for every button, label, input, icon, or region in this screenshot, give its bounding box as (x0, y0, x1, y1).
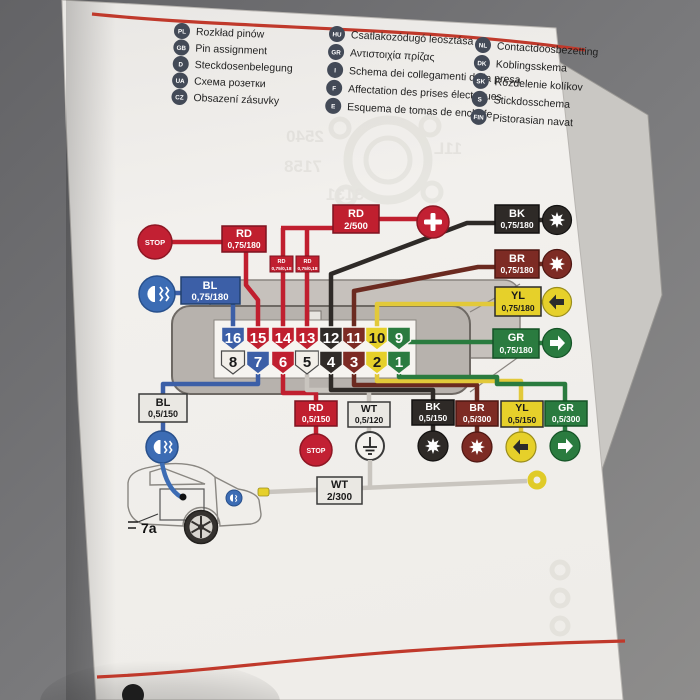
svg-text:WT: WT (331, 479, 348, 491)
svg-text:15: 15 (250, 330, 267, 347)
pin-14: 14 (272, 327, 295, 350)
language-code: HU (332, 31, 342, 38)
svg-text:13: 13 (299, 330, 316, 347)
svg-text:0,75/180: 0,75/180 (227, 240, 260, 250)
ghost-number: 11L (434, 139, 462, 158)
fog-lamp-symbol-top (139, 276, 175, 312)
svg-text:5: 5 (303, 354, 311, 371)
turn-signal-right-symbol-top (543, 329, 572, 358)
svg-text:0,75/0,18: 0,75/0,18 (297, 266, 317, 272)
tail-lamp-symbol-black-top (543, 206, 572, 235)
label-rd-stop: RD 0,75/180 (222, 226, 266, 252)
housing-latch (309, 311, 321, 320)
svg-text:GR: GR (558, 402, 574, 414)
ghost-number: 2540 (286, 127, 324, 146)
svg-text:0,75/0,18: 0,75/0,18 (271, 266, 291, 272)
stop-symbol-top: STOP (138, 225, 172, 259)
wire-ferrule (258, 488, 269, 496)
svg-text:YL: YL (511, 290, 525, 302)
svg-text:10: 10 (369, 330, 386, 347)
svg-text:BL: BL (156, 397, 171, 409)
svg-text:RD: RD (348, 208, 364, 220)
svg-text:0,5/150: 0,5/150 (508, 415, 537, 425)
svg-text:6: 6 (279, 354, 287, 371)
svg-text:0,75/180: 0,75/180 (192, 292, 229, 303)
language-code: F (332, 85, 336, 92)
label-rd-plus: RD 2/500 (333, 205, 379, 233)
svg-text:0,75/180: 0,75/180 (501, 303, 534, 313)
pin-12: 12 (320, 327, 343, 350)
svg-text:BL: BL (203, 280, 218, 292)
svg-text:1: 1 (395, 354, 403, 371)
car-callout-label: 7a (141, 520, 157, 536)
svg-text:8: 8 (229, 354, 237, 371)
svg-text:GR: GR (508, 332, 525, 344)
ghost-number: 3131 (326, 185, 364, 204)
language-code: S (477, 96, 482, 103)
pin-10: 10 (366, 327, 389, 350)
svg-text:0,5/120: 0,5/120 (355, 415, 384, 425)
svg-text:RD: RD (278, 259, 286, 265)
language-code: PL (178, 28, 186, 35)
language-code: GR (331, 49, 341, 57)
label-yl-bottom: YL 0,5/150 (501, 401, 543, 427)
label-rd-small-2: RD 0,75/0,18 (296, 256, 319, 272)
svg-text:2/500: 2/500 (344, 221, 368, 232)
svg-text:STOP: STOP (307, 448, 326, 455)
label-rd-bottom: RD 0,5/150 (295, 401, 337, 426)
tail-lamp-symbol-brown-top (543, 250, 572, 279)
car-connection-dot (180, 494, 187, 501)
photo-of-instruction-sheet: 2540 7158 3131 11L PL Rozkład pinów GB P… (0, 0, 700, 700)
car-fog-lamp-marker (226, 490, 242, 506)
label-gr-top: GR 0,75/180 (493, 329, 539, 358)
svg-text:RD: RD (304, 259, 312, 265)
svg-text:RD: RD (236, 228, 252, 240)
fog-lamp-symbol-bottom (146, 431, 178, 463)
label-bk-bottom: BK 0,5/150 (412, 400, 454, 425)
tail-lamp-symbol-brown-bottom (462, 432, 492, 462)
svg-text:0,5/300: 0,5/300 (552, 414, 581, 424)
svg-text:4: 4 (327, 354, 336, 371)
label-rd-small-1: RD 0,75/0,18 (270, 256, 293, 272)
language-code: UA (175, 78, 185, 85)
svg-text:2/300: 2/300 (327, 492, 352, 503)
label-yl-top: YL 0,75/180 (495, 287, 541, 316)
label-wt-bottom: WT 0,5/120 (348, 402, 390, 427)
svg-text:0,75/180: 0,75/180 (499, 345, 532, 355)
svg-text:14: 14 (275, 330, 292, 347)
battery-plus-symbol (417, 206, 449, 238)
language-code: FIN (473, 114, 484, 122)
stop-symbol-bottom: STOP (300, 434, 332, 466)
lamp-star-icon (549, 212, 565, 228)
turn-signal-right-symbol-bottom (550, 431, 580, 461)
svg-text:BK: BK (509, 208, 525, 220)
lamp-star-icon (425, 438, 441, 454)
svg-text:0,5/300: 0,5/300 (463, 414, 492, 424)
language-code: GB (176, 45, 186, 52)
svg-text:YL: YL (515, 402, 529, 414)
svg-text:WT: WT (361, 403, 378, 415)
car-wheel-hub (198, 524, 204, 530)
svg-text:0,5/150: 0,5/150 (419, 413, 448, 423)
svg-text:9: 9 (395, 330, 403, 347)
label-br-bottom: BR 0,5/300 (456, 401, 498, 426)
svg-text:7: 7 (254, 354, 262, 371)
ghost-number: 7158 (284, 157, 322, 176)
svg-text:16: 16 (225, 330, 242, 347)
paper-left-shadow (66, 0, 116, 700)
language-code: CZ (175, 94, 184, 101)
pin-15: 15 (247, 327, 270, 350)
turn-signal-left-symbol-bottom (506, 432, 536, 462)
language-code: DK (477, 60, 487, 68)
lamp-star-icon (549, 256, 565, 272)
label-bl-top: BL 0,75/180 (181, 277, 240, 304)
label-wt-ground: WT 2/300 (317, 477, 362, 504)
svg-text:2: 2 (373, 354, 381, 371)
label-bk-top: BK 0,75/180 (495, 205, 539, 233)
svg-text:BR: BR (509, 253, 525, 265)
connector-pins: 16 15 14 13 12 11 10 9 8 7 6 5 4 3 2 1 (222, 327, 411, 374)
svg-text:11: 11 (346, 330, 362, 347)
svg-text:3: 3 (350, 354, 358, 371)
svg-text:RD: RD (308, 402, 324, 414)
label-br-top: BR 0,75/180 (495, 250, 539, 278)
language-code: SK (476, 78, 486, 86)
svg-text:STOP: STOP (145, 238, 165, 247)
svg-text:BR: BR (469, 402, 485, 414)
turn-signal-left-symbol-top (543, 288, 572, 317)
svg-text:0,5/150: 0,5/150 (148, 409, 178, 419)
tail-lamp-symbol-black-bottom (418, 431, 448, 461)
svg-text:0,5/150: 0,5/150 (302, 414, 331, 424)
lamp-star-icon (469, 439, 485, 455)
language-code: NL (479, 42, 488, 50)
label-gr-bottom: GR 0,5/300 (545, 401, 587, 426)
label-bl-bottom: BL 0,5/150 (139, 394, 187, 422)
svg-text:0,75/180: 0,75/180 (500, 220, 533, 230)
svg-text:12: 12 (323, 330, 340, 347)
pin-16: 16 (222, 327, 245, 350)
ground-symbol (356, 432, 384, 460)
language-code: D (178, 61, 183, 68)
pin-13: 13 (296, 327, 319, 350)
svg-text:BK: BK (425, 401, 441, 413)
language-code: E (331, 103, 336, 110)
svg-text:0,75/180: 0,75/180 (500, 265, 533, 275)
